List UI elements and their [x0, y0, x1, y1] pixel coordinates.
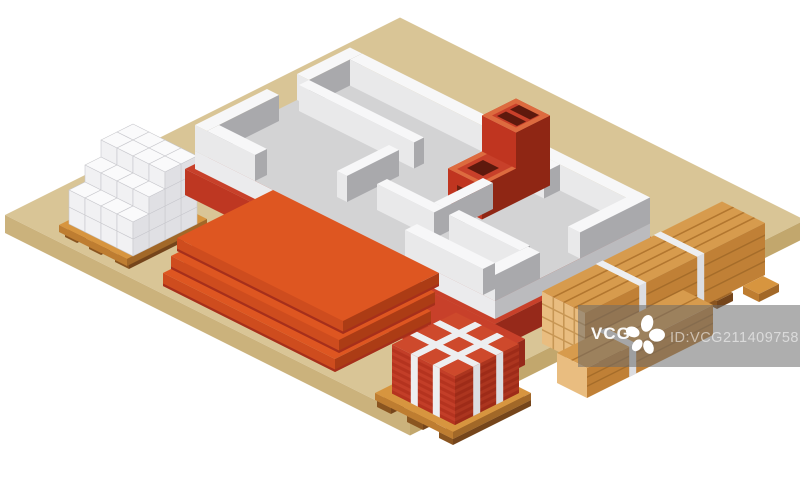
isometric-construction-illustration: [0, 0, 800, 480]
construction-site-scene: VCG ID:VCG211409758111: [0, 0, 800, 480]
